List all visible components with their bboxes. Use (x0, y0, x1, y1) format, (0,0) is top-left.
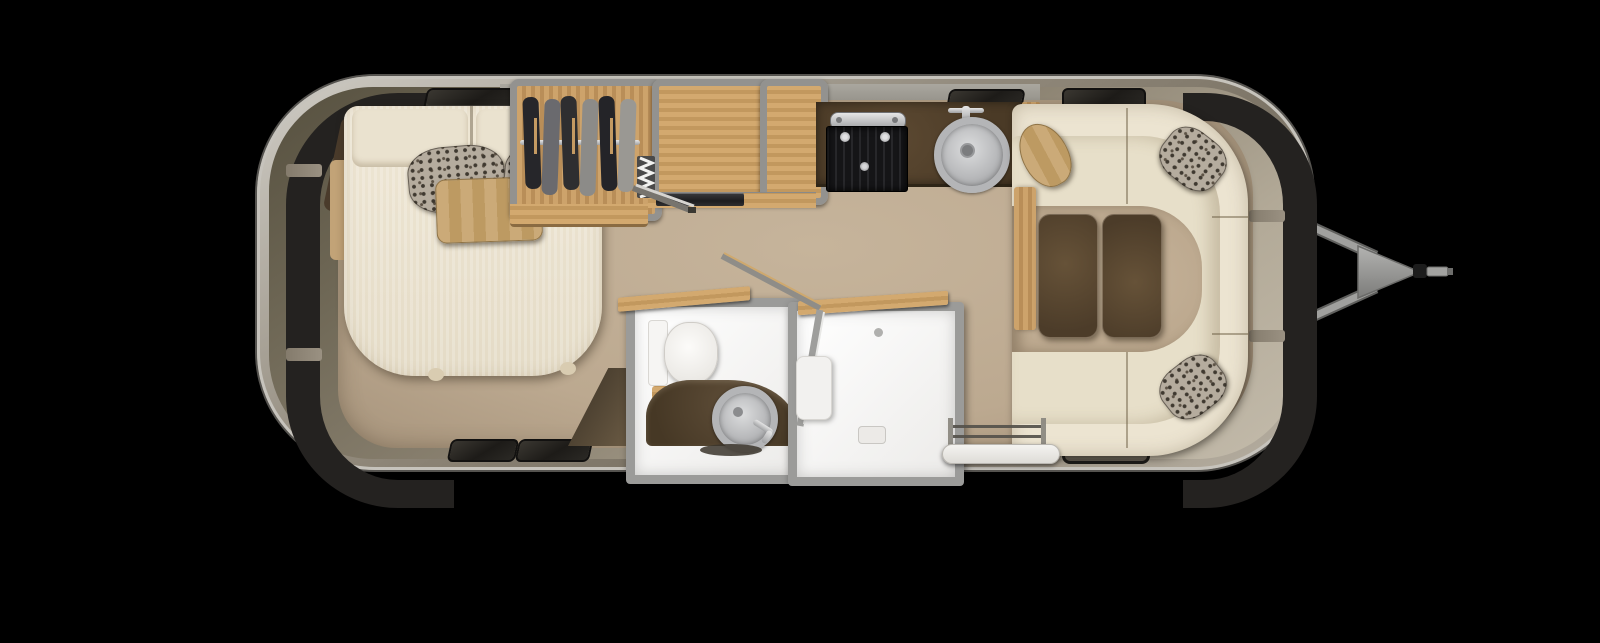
stove-burner-cap (840, 132, 850, 142)
hanger-hook (534, 118, 537, 154)
bed-foot-right (560, 362, 576, 375)
stove-handle-screw (892, 117, 898, 123)
lounge-table-right (1102, 214, 1162, 338)
hanger-hook (610, 118, 613, 154)
hanging-garment (579, 99, 598, 196)
sofa-seam (1126, 108, 1128, 204)
hitch-jack-tip (1447, 268, 1453, 275)
window-mullion (1249, 210, 1285, 222)
floorplan-scene (0, 0, 1600, 643)
stove-burner-cap (880, 132, 890, 142)
stove-handle-screw (836, 117, 842, 123)
lounge-table-left (1038, 214, 1098, 338)
sofa-seam (1126, 352, 1128, 448)
hitch-coupler (1413, 264, 1427, 278)
shower-drain-fixture (858, 426, 886, 444)
kitchen-sink-drain (960, 143, 975, 158)
hanging-garment (598, 96, 617, 192)
shower-door-rail-wood-edge (724, 253, 822, 305)
hitch-jack-bar (1427, 267, 1448, 276)
hanging-garment (560, 96, 579, 191)
entry-step (942, 444, 1060, 464)
hitch-a-frame (1300, 210, 1465, 335)
stove-burner-cap (860, 162, 869, 171)
fold-out-foot (688, 207, 696, 213)
stove (826, 126, 908, 192)
bed-foot-left (428, 368, 444, 381)
shower-seat (796, 356, 832, 420)
window-mullion (286, 348, 322, 361)
sofa-seam (1212, 333, 1248, 335)
hitch-triangle-plate (1358, 246, 1420, 298)
hanging-garment (522, 97, 541, 190)
shower-door-open-rail (722, 256, 820, 308)
fold-out-support (628, 180, 698, 220)
window-mullion (1249, 330, 1285, 342)
sofa-end-table (1014, 187, 1036, 330)
hanging-garment (541, 99, 560, 195)
bath-mat (700, 444, 762, 456)
hanger-hook (572, 118, 575, 154)
shower-valve (874, 328, 883, 337)
hanging-garment (617, 99, 636, 193)
bedroom-bottom-window-1 (447, 439, 520, 462)
fold-out-rail (633, 188, 690, 210)
window-mullion (286, 164, 322, 177)
sofa-seam (1212, 216, 1248, 218)
